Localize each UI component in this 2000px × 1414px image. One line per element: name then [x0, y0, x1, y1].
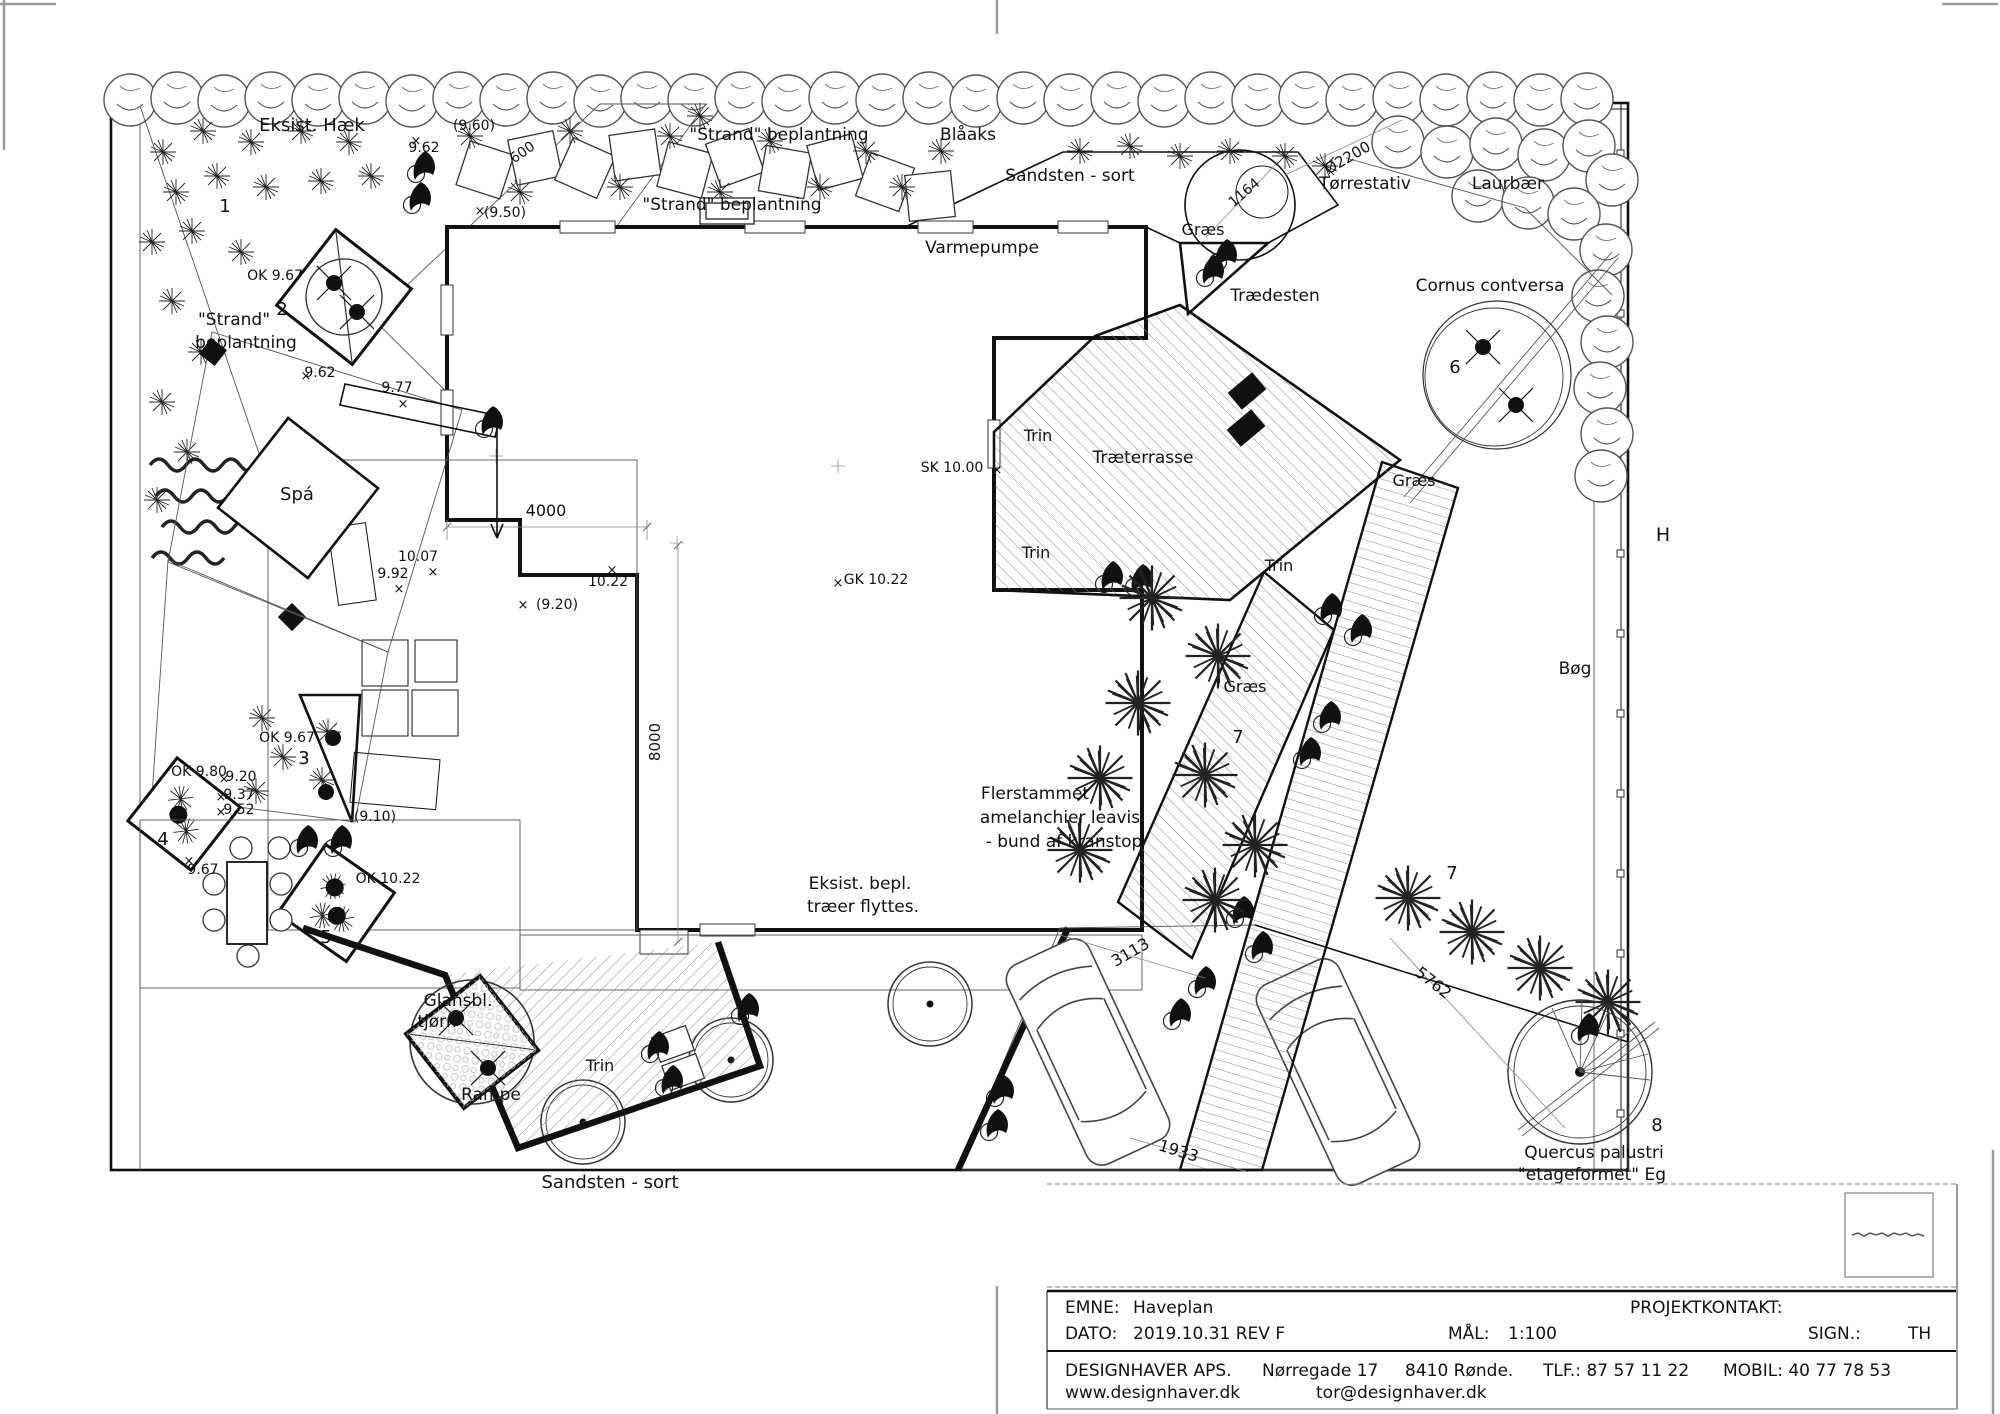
- plan-label-traedesten: Trædesten: [1229, 286, 1320, 306]
- plan-label-x-10: ×: [219, 772, 230, 787]
- plan-label-strand-left-1: "Strand": [198, 310, 270, 330]
- plan-label-varmepumpe: Varmepumpe: [925, 238, 1039, 258]
- plan-label-traeterrasse: Træterrasse: [1092, 448, 1194, 468]
- plan-label-sandsten-sort-top: Sandsten - sort: [1005, 166, 1135, 186]
- plan-label-dim-9-20-paren: (9.20): [536, 597, 578, 613]
- plan-label-spa: Spá: [280, 484, 314, 505]
- title-block: EMNE: Haveplan PROJEKTKONTAKT: DATO: 201…: [1047, 1184, 1957, 1409]
- plan-label-x-3: ×: [301, 369, 312, 384]
- garden-plan-drawing: Eksist. Hæk(9.60)9.62"Strand" beplantnin…: [0, 0, 2000, 1414]
- plan-label-trin-terrasse-bottom: Trin: [1021, 543, 1051, 562]
- plan-label-eksist-bepl-2: træer flyttes.: [807, 897, 919, 917]
- plan-label-x-6: ×: [518, 598, 529, 613]
- plan-label-strand-left-2: beplantning: [195, 333, 297, 353]
- plan-label-x-2: ×: [475, 204, 486, 219]
- plan-label-key-7a: 7: [1232, 727, 1243, 748]
- plan-label-flerstammet-3: - bund af kranstop: [986, 832, 1143, 852]
- plan-label-x-9: ×: [992, 463, 1003, 478]
- plan-label-key-1: 1: [219, 196, 230, 217]
- plan-label-h-mark: H: [1656, 524, 1670, 546]
- plan-label-laurbaer: Laurbær: [1472, 174, 1544, 194]
- plan-label-flerstammet-1: Flerstammet: [981, 784, 1089, 804]
- maal-value: 1:100: [1508, 1324, 1557, 1344]
- sign-value: TH: [1907, 1324, 1931, 1344]
- plan-label-dim-ok-9-67-bed: OK 9.67: [259, 730, 315, 746]
- emne-value: Haveplan: [1133, 1298, 1213, 1318]
- plan-label-quercus-1: Quercus palustri: [1524, 1143, 1664, 1163]
- plan-label-glansbl-1: Glansbl.: [424, 991, 493, 1011]
- plan-label-dim-o2200: Ø2200: [1321, 137, 1373, 178]
- plan-label-strand-beplantning-top1: "Strand" beplantning: [689, 125, 868, 145]
- firm-mobile: MOBIL: 40 77 78 53: [1723, 1361, 1891, 1381]
- plan-label-dim-9-77: 9.77: [381, 380, 412, 396]
- plan-label-key-5: 5: [320, 927, 331, 948]
- planter-5: [278, 845, 395, 962]
- firm-phone: TLF.: 87 57 11 22: [1542, 1361, 1689, 1381]
- plan-label-boeg: Bøg: [1559, 659, 1592, 679]
- plan-label-dim-9-10-paren: (9.10): [354, 809, 396, 825]
- plan-label-x-13: ×: [184, 854, 195, 869]
- plan-label-trin-path-east: Trin: [1264, 556, 1294, 575]
- spa-deck: [152, 332, 503, 822]
- plan-label-dim-8000: 8000: [646, 723, 664, 761]
- quercus-tree: [1508, 1000, 1659, 1144]
- plan-label-blaaks: Blåaks: [940, 124, 996, 145]
- plan-label-dim-4000: 4000: [526, 501, 567, 520]
- firm-city: 8410 Rønde.: [1405, 1361, 1513, 1381]
- sign-label: SIGN.:: [1808, 1324, 1861, 1344]
- plan-label-x-4: ×: [398, 397, 409, 412]
- plan-label-key-7b: 7: [1446, 863, 1457, 884]
- plan-label-dim-9-52: 9.52: [223, 802, 254, 818]
- maal-label: MÅL:: [1448, 1322, 1490, 1344]
- plan-label-strand-beplantning-top2: "Strand" beplantning: [642, 195, 821, 215]
- plan-label-x-8: ×: [833, 576, 844, 591]
- plan-label-x-11: ×: [216, 790, 227, 805]
- plan-label-dim-sk-10-00: SK 10.00: [921, 460, 984, 476]
- plan-label-dim-3113: 3113: [1108, 934, 1153, 971]
- plan-label-dim-gk-10-22: GK 10.22: [844, 572, 909, 588]
- plan-label-key-8: 8: [1651, 1115, 1662, 1136]
- emne-label: EMNE:: [1065, 1298, 1120, 1318]
- plan-label-dim-9-37: 9.37: [223, 787, 254, 803]
- projektkontakt-label: PROJEKTKONTAKT:: [1630, 1298, 1783, 1318]
- plan-label-dim-10-07: 10.07: [398, 549, 438, 565]
- plan-label-x-12: ×: [216, 805, 227, 820]
- plan-label-eksist-haek: Eksist. Hæk: [259, 115, 365, 136]
- plan-label-eksist-bepl-1: Eksist. bepl.: [809, 874, 912, 894]
- plan-label-dim-ok-9-67-sculpture: OK 9.67: [247, 268, 303, 284]
- plan-label-x-1: ×: [411, 134, 422, 149]
- plan-label-dim-9-92: 9.92: [377, 566, 408, 582]
- firm-address: Nørregade 17: [1262, 1361, 1378, 1381]
- haveplan-sheet: Eksist. Hæk(9.60)9.62"Strand" beplantnin…: [0, 0, 2000, 1414]
- plan-label-dim-ok-10-22: OK 10.22: [356, 871, 421, 887]
- plan-label-graes-mid: Græs: [1223, 677, 1266, 696]
- dato-value: 2019.10.31 REV F: [1133, 1324, 1285, 1344]
- plan-label-flerstammet-2: amelanchier leavis: [980, 808, 1140, 828]
- plan-label-cornus-contversa: Cornus contversa: [1416, 276, 1565, 296]
- plan-label-sandsten-sort-bottom: Sandsten - sort: [542, 1172, 679, 1193]
- plan-label-graes-right: Græs: [1392, 471, 1435, 490]
- plan-label-dim-9-50: (9.50): [484, 205, 526, 221]
- plan-label-dim-9-20: 9.20: [225, 769, 256, 785]
- plan-label-key-3: 3: [298, 748, 309, 769]
- plan-label-trin-terrasse-top: Trin: [1023, 426, 1053, 445]
- plan-label-dim-5762: 5762: [1411, 963, 1455, 1003]
- plan-label-key-2: 2: [276, 299, 287, 320]
- plan-label-rampe: Rampe: [461, 1085, 521, 1105]
- plan-label-quercus-2: "etageformet" Eg: [1518, 1165, 1666, 1185]
- plan-label-dim-1164: 1164: [1226, 175, 1264, 210]
- plan-label-x-5: ×: [394, 582, 405, 597]
- plan-label-dim-9-60: (9.60): [453, 118, 495, 134]
- plan-label-key-4: 4: [157, 829, 168, 850]
- plan-label-trin-rampe: Trin: [585, 1056, 615, 1075]
- plan-label-x-7: ×: [607, 563, 618, 578]
- dato-label: DATO:: [1065, 1324, 1117, 1344]
- plan-label-key-6: 6: [1449, 357, 1460, 378]
- plan-label-x-14: ×: [428, 565, 439, 580]
- firm-web: www.designhaver.dk: [1065, 1383, 1240, 1403]
- dining-table: [227, 862, 267, 944]
- ramp-area: [303, 928, 760, 1148]
- firm-email: tor@designhaver.dk: [1316, 1383, 1487, 1403]
- traeterrasse-area: [994, 305, 1400, 600]
- plan-label-graes-ne: Græs: [1181, 220, 1224, 239]
- firm-name: DESIGNHAVER APS.: [1065, 1361, 1232, 1381]
- plan-label-glansbl-2: tjørn: [417, 1012, 456, 1032]
